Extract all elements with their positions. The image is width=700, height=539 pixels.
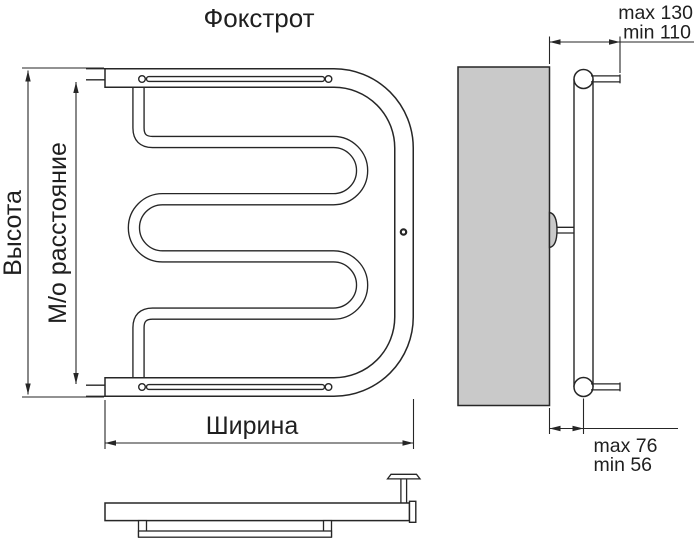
side-view: max 130 min 110 max 76 min 56 — [458, 2, 694, 476]
technical-drawing: Фокстрот — [0, 0, 700, 539]
plan-tube — [105, 503, 410, 521]
top-connection-stub — [86, 69, 105, 80]
top-rail-post-right — [325, 76, 332, 83]
top-bar-end-circle — [574, 70, 593, 89]
top-rail-slot — [139, 76, 332, 83]
width-label: Ширина — [206, 412, 299, 440]
drawing-svg: Фокстрот — [0, 0, 700, 539]
drawing-title: Фокстрот — [203, 3, 314, 33]
side-tube — [574, 70, 620, 397]
bottom-bar-end-circle — [574, 378, 593, 397]
coil-tube-outline — [134, 84, 362, 386]
plan-rail — [139, 521, 332, 538]
rail-bar — [139, 531, 332, 537]
bottom-offset-min-label: min 56 — [594, 454, 653, 476]
top-offset-min-label: min 110 — [623, 22, 691, 44]
side-bottom-stub — [591, 383, 620, 392]
frame-tube-outline — [105, 78, 405, 387]
bracket-flange — [550, 213, 558, 248]
height-label: Высота — [0, 190, 27, 276]
plan-view — [105, 474, 420, 537]
frame-tube-inner — [105, 78, 405, 387]
width-dimension: Ширина — [105, 399, 414, 449]
top-rail-post-left — [139, 76, 146, 83]
bottom-offset-dimension: max 76 min 56 — [550, 399, 679, 477]
bottom-connection-stub — [86, 385, 105, 396]
wall — [458, 67, 550, 406]
bottom-rail-post-right — [325, 384, 332, 391]
center-distance-label: М/о расстояние — [44, 142, 72, 324]
bottom-rail-slot — [139, 384, 332, 391]
front-view: Высота М/о расстояние Ширина — [0, 68, 414, 449]
bottom-rail-post-left — [139, 384, 146, 391]
side-top-stub — [591, 75, 620, 84]
coil-tube-inner — [134, 84, 362, 386]
plan-tube-end-cap — [410, 501, 416, 522]
center-distance-dimension: М/о расстояние — [44, 82, 76, 384]
top-offset-dimension: max 130 min 110 — [550, 2, 695, 73]
plan-wall-bracket — [388, 474, 421, 503]
bracket-mount-dot — [401, 229, 406, 234]
plan-bracket-flange — [388, 474, 421, 479]
wall-bracket — [550, 213, 575, 248]
